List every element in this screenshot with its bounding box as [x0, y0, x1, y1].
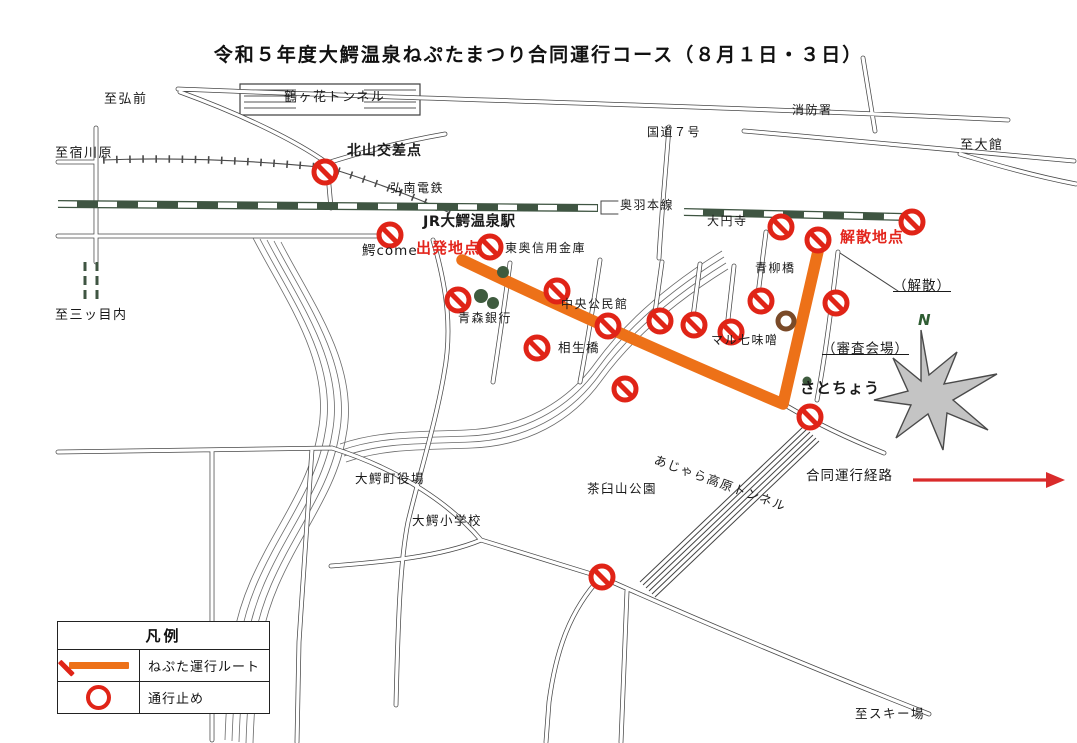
map-label-daienji: 大円寺 [707, 215, 748, 228]
map-label-owani-elementary-school: 大鰐小学校 [412, 514, 482, 528]
no-entry-sign [797, 404, 824, 431]
map-label-kitayama-intersection: 北山交差点 [347, 144, 422, 159]
legend-route-label: ねぷた運行ルート [140, 656, 260, 675]
map-label-dispersal-note: （解散） [893, 279, 951, 294]
map-label-chausuyama-park: 茶臼山公園 [587, 482, 657, 496]
map-label-central-community-hall: 中央公民館 [561, 298, 629, 311]
map-label-to-mitsumenai: 至三ッ目内 [55, 309, 128, 323]
map-label-jr-owani-onsen-station: JR大鰐温泉駅 [423, 215, 516, 231]
map-label-dispersal-point: 解散地点 [840, 229, 904, 246]
map-label-to-hirosaki: 至弘前 [104, 93, 148, 107]
legend: 凡例 ねぷた運行ルート 通行止め [57, 621, 270, 714]
no-entry-sign [823, 290, 850, 317]
no-entry-sign [805, 227, 832, 254]
no-entry-sign [445, 287, 472, 314]
legend-title: 凡例 [58, 622, 269, 650]
map-label-to-shukugawara: 至宿川原 [55, 147, 113, 161]
map-label-maru-shichi-miso: マル七味噌 [711, 334, 779, 347]
map-label-route-7: 国道７号 [647, 126, 701, 139]
no-entry-sign [768, 214, 795, 241]
no-entry-icon [86, 685, 111, 710]
page-title: 令和５年度大鰐温泉ねぷたまつり合同運行コース（８月１日・３日） [0, 40, 1077, 67]
legend-row-closure: 通行止め [58, 682, 269, 713]
map-label-tsurugahana-tunnel: 鶴ヶ花トンネル [284, 91, 385, 105]
map-label-aioi-bridge: 相生橋 [558, 341, 600, 355]
festival-route-map: 至弘前鶴ヶ花トンネル至宿川原北山交差点弘南電鉄消防署国道７号至大館奥羽本線大円寺… [0, 0, 1077, 743]
map-label-aoyagi-bridge: 青柳橋 [755, 262, 796, 275]
map-label-satocho: さとちょう [800, 380, 880, 397]
map-label-judging-venue: （審査会場） [822, 342, 909, 357]
map-label-departure-point: 出発地点 [416, 240, 480, 257]
map-label-compass-n: N [918, 312, 932, 329]
map-label-joint-route-direction: 合同運行経路 [806, 469, 893, 484]
no-entry-sign [477, 234, 504, 261]
no-entry-sign [681, 312, 708, 339]
map-label-owani-town-hall: 大鰐町役場 [355, 472, 425, 486]
no-entry-sign [748, 288, 775, 315]
map-label-to-ski-area: 至スキー場 [855, 707, 925, 721]
legend-closure-label: 通行止め [140, 688, 204, 707]
ajara-tunnel-symbol [640, 426, 819, 597]
route-line-swatch [69, 662, 129, 669]
map-label-aomori-bank: 青森銀行 [458, 312, 512, 325]
route-direction-arrow [913, 472, 1065, 488]
map-label-to-odate: 至大館 [960, 139, 1004, 153]
legend-symbol-cell [58, 682, 140, 713]
map-label-toou-shinkin-bank: 東奥信用金庫 [505, 242, 586, 255]
no-entry-sign [524, 335, 551, 362]
map-label-konan-railway: 弘南電鉄 [390, 182, 444, 195]
legend-row-route: ねぷた運行ルート [58, 650, 269, 682]
no-entry-sign [589, 564, 616, 591]
no-entry-sign [312, 159, 339, 186]
map-label-wani-come: 鰐come [362, 244, 418, 259]
map-label-ou-main-line: 奥羽本線 [620, 199, 674, 212]
no-entry-sign [612, 376, 639, 403]
no-entry-sign [647, 308, 674, 335]
legend-symbol-cell [58, 650, 140, 681]
map-label-fire-station: 消防署 [792, 104, 833, 117]
no-entry-sign [595, 313, 622, 340]
